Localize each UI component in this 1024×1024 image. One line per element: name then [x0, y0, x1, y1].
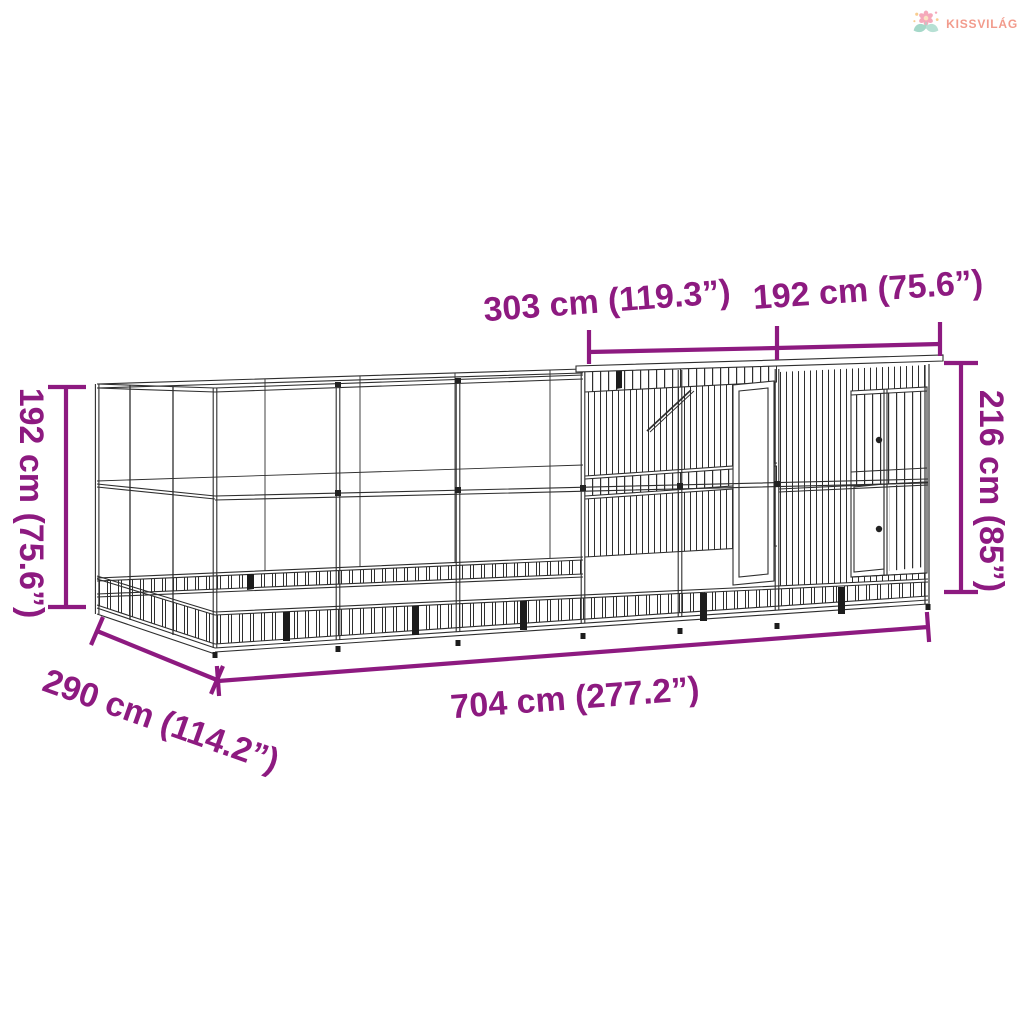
door-knob	[876, 526, 882, 532]
product-dimension-diagram: 303 cm (119.3”) 192 cm (75.6”) 192 cm (7…	[0, 0, 1024, 1024]
left-dimension-line	[48, 387, 86, 607]
top-dimension-line	[589, 344, 940, 352]
aviary-wireframe-drawing	[0, 0, 1024, 1024]
left-end-frame	[95, 384, 215, 654]
brand-logo: KISSVILÁG	[909, 8, 1018, 39]
coop-window-bars	[854, 391, 924, 472]
front-base-band	[213, 579, 931, 658]
dimension-label-right-height: 216 cm (85”)	[974, 390, 1008, 592]
dimension-label-left-height: 192 cm (75.6”)	[14, 388, 48, 619]
extension-back-wall	[585, 361, 777, 585]
door-knob	[876, 437, 882, 443]
brand-name: KISSVILÁG	[946, 17, 1018, 31]
aviary-structure	[95, 355, 943, 658]
flower-sprout-logo-icon	[909, 8, 943, 39]
